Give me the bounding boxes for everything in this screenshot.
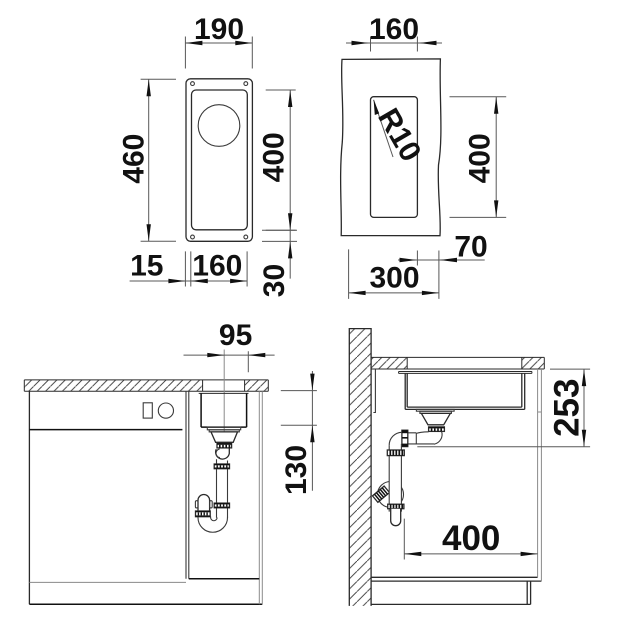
svg-text:130: 130: [280, 445, 313, 495]
svg-text:160: 160: [369, 13, 419, 46]
svg-text:400: 400: [258, 132, 291, 182]
svg-text:70: 70: [454, 231, 487, 264]
svg-text:253: 253: [547, 378, 586, 436]
svg-text:400: 400: [463, 133, 496, 183]
svg-text:15: 15: [130, 250, 163, 283]
svg-text:30: 30: [258, 264, 291, 297]
svg-text:300: 300: [369, 262, 419, 295]
svg-text:400: 400: [442, 519, 500, 558]
svg-text:460: 460: [118, 134, 151, 184]
svg-text:160: 160: [192, 250, 242, 283]
svg-text:190: 190: [194, 13, 244, 46]
svg-text:95: 95: [219, 319, 252, 352]
